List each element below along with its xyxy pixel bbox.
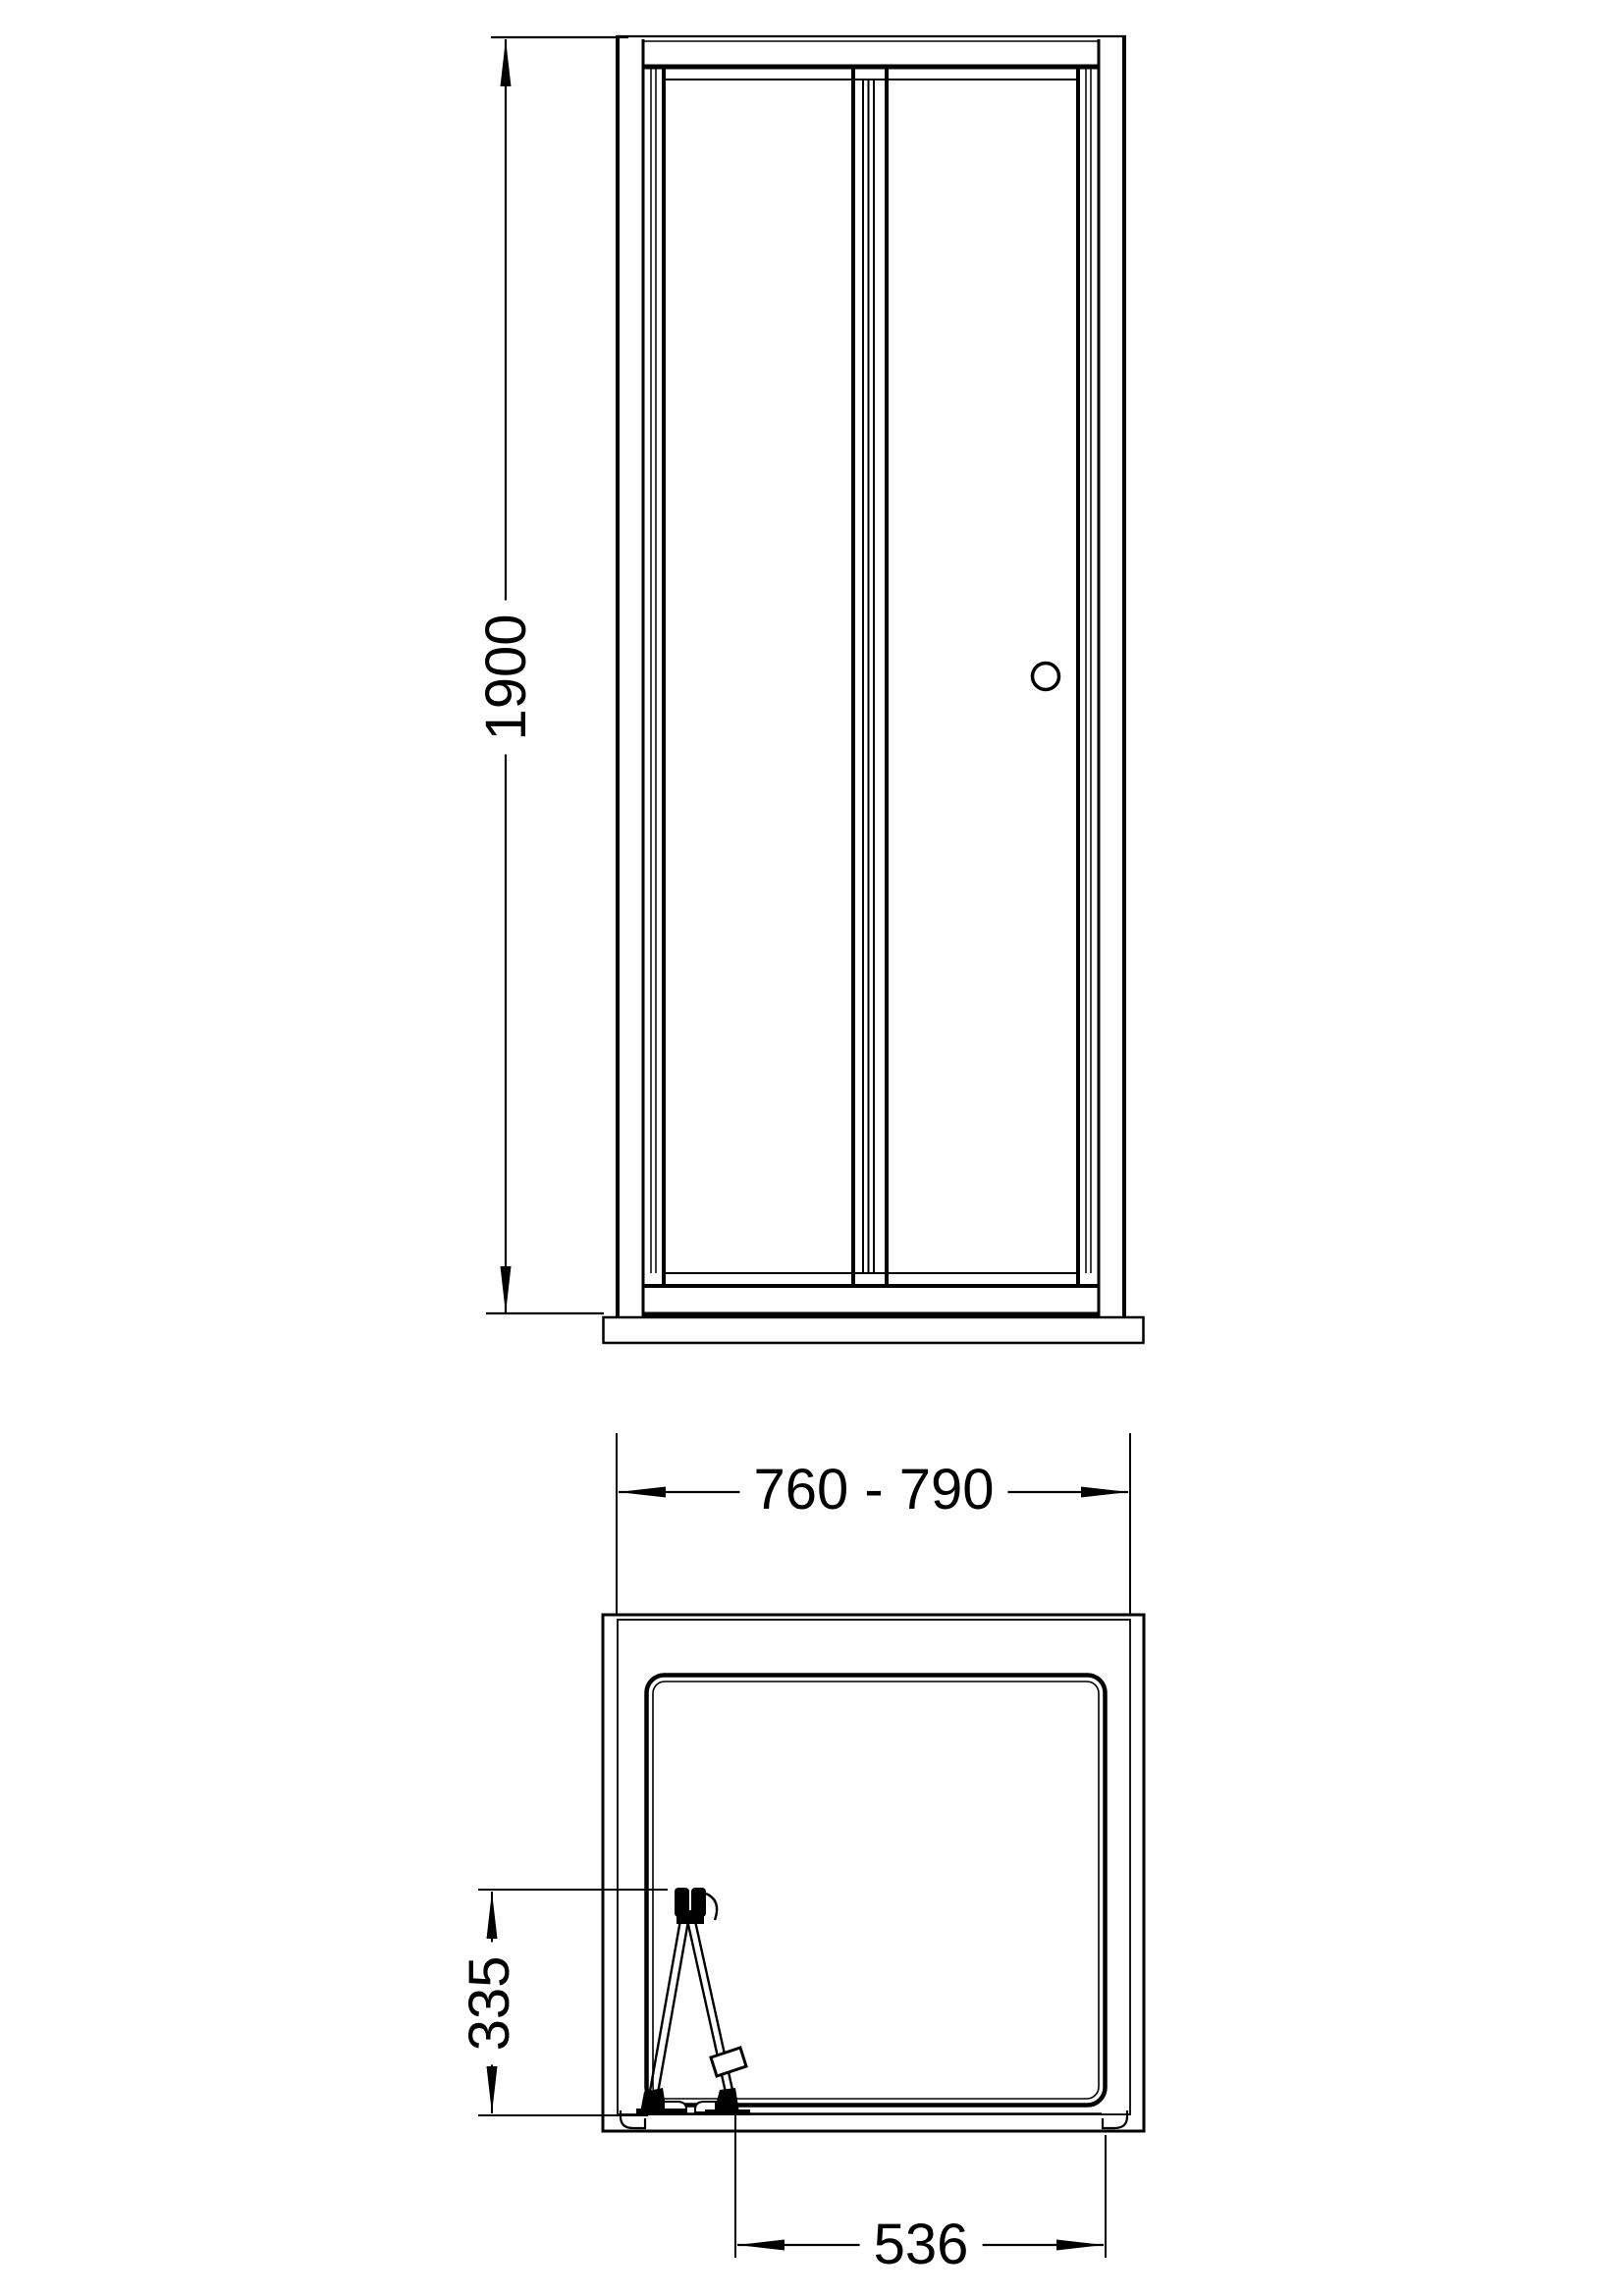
front-elevation-view — [486, 35, 1144, 1343]
arrowhead-left — [737, 2240, 784, 2251]
arrowhead-up — [487, 1892, 498, 1939]
width-range-dimension-label: 760 - 790 — [739, 1456, 1007, 1524]
plan-view — [478, 1433, 1144, 2258]
arrowhead-down — [501, 1266, 512, 1313]
door-handle-circle — [1033, 664, 1059, 690]
door-panels — [651, 69, 1091, 1286]
right-channel-profile — [1103, 2110, 1127, 2128]
arrowhead-right — [1081, 1487, 1128, 1498]
arrowhead-right — [1056, 2240, 1104, 2251]
hinge-swing-arc — [706, 1894, 717, 1920]
opening-width-dimension-label: 536 — [860, 2211, 983, 2279]
depth-dimension-label: 335 — [456, 1943, 524, 2065]
drawing-linework — [0, 0, 1623, 2296]
door-frame — [616, 35, 1126, 1317]
arrowhead-left — [619, 1487, 666, 1498]
shower-tray-plan — [603, 1615, 1144, 2131]
arrowhead-down — [487, 2066, 498, 2113]
arrowhead-up — [501, 39, 512, 86]
technical-drawing-page: 1900 760 - 790 335 536 — [0, 0, 1623, 2296]
height-dimension-label: 1900 — [472, 600, 541, 754]
shower-tray-front — [604, 1317, 1144, 1343]
